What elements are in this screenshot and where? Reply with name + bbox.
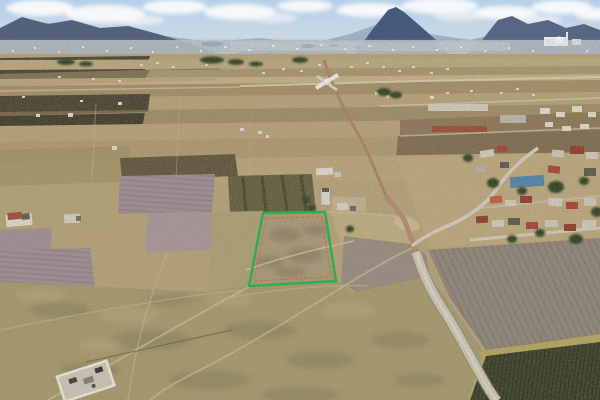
aerial-photo xyxy=(0,0,600,400)
aerial-photo-canvas xyxy=(0,0,600,400)
distant-lake xyxy=(201,42,223,47)
